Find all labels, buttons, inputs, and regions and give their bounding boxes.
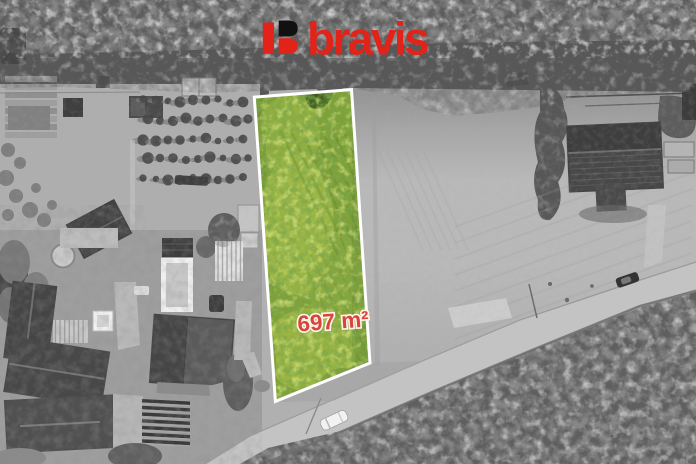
svg-text:bravis: bravis [307, 13, 428, 65]
svg-text:697 m²: 697 m² [297, 307, 370, 337]
